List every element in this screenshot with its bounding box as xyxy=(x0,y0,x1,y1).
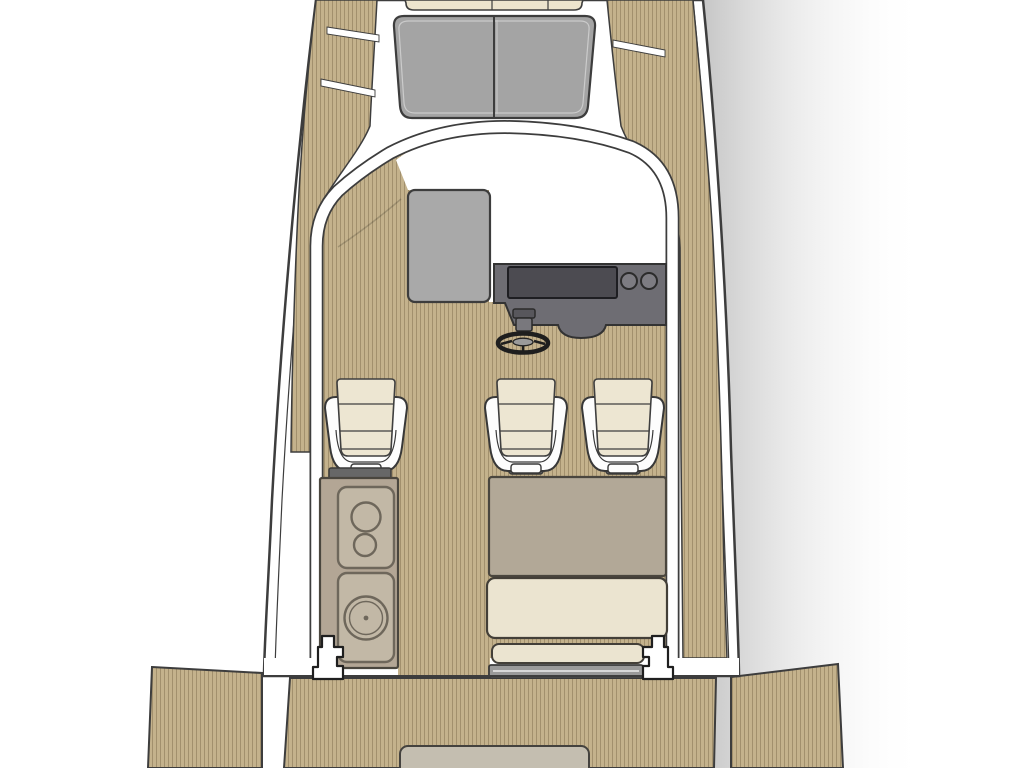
engine-hatch xyxy=(400,746,589,768)
helm-seat-1 xyxy=(325,379,407,474)
aft-bench xyxy=(487,477,667,678)
foredeck-hatch-panels xyxy=(394,16,595,118)
companionway-hatch xyxy=(408,190,490,302)
helm-seat-2 xyxy=(485,379,567,474)
helm-seat-3 xyxy=(582,379,664,474)
gauge-dial xyxy=(621,273,637,289)
deck-plan-canvas xyxy=(0,0,1024,768)
bow-sunpad xyxy=(405,0,583,10)
fold-down-platform-left xyxy=(148,667,262,768)
bench-step xyxy=(492,644,644,663)
fold-down-platform-right xyxy=(731,664,843,768)
transom-teak-patch xyxy=(398,658,490,676)
bench-backrest xyxy=(489,477,666,576)
bench-seat-cushion xyxy=(487,578,667,638)
gauge-dial xyxy=(641,273,657,289)
instrument-panel xyxy=(508,267,617,298)
boat-deck-plan xyxy=(0,0,1024,768)
steering-column xyxy=(513,309,535,331)
